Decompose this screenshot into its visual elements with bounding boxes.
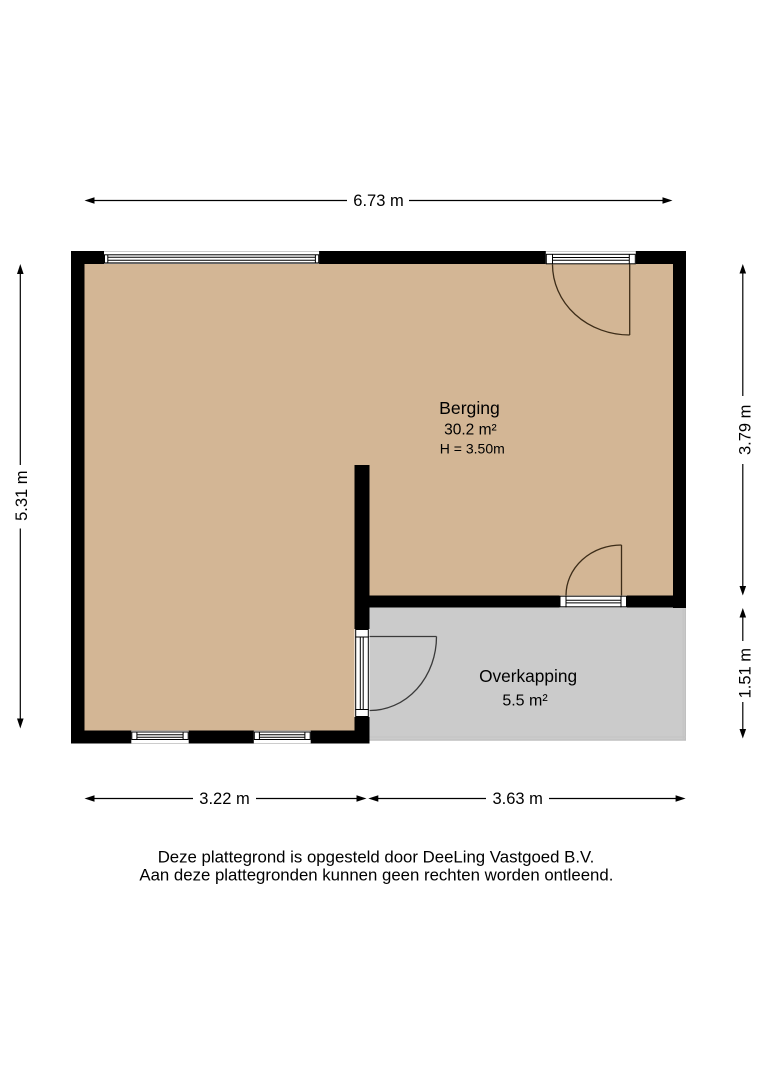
svg-text:6.73 m: 6.73 m <box>353 192 403 210</box>
svg-text:1.51 m: 1.51 m <box>737 648 755 698</box>
svg-text:Berging: Berging <box>439 398 500 418</box>
svg-text:5.31 m: 5.31 m <box>13 470 31 520</box>
svg-text:3.63 m: 3.63 m <box>492 790 542 808</box>
svg-text:3.22 m: 3.22 m <box>199 790 249 808</box>
svg-text:30.2 m²: 30.2 m² <box>444 422 497 439</box>
svg-text:Overkapping: Overkapping <box>479 666 577 686</box>
svg-text:3.79 m: 3.79 m <box>737 405 755 455</box>
svg-text:5.5 m²: 5.5 m² <box>502 693 548 710</box>
svg-text:H = 3.50m: H = 3.50m <box>440 441 505 457</box>
svg-text:Aan deze plattegronden kunnen: Aan deze plattegronden kunnen geen recht… <box>139 866 613 885</box>
svg-text:Deze plattegrond is opgesteld: Deze plattegrond is opgesteld door DeeLi… <box>158 848 595 867</box>
